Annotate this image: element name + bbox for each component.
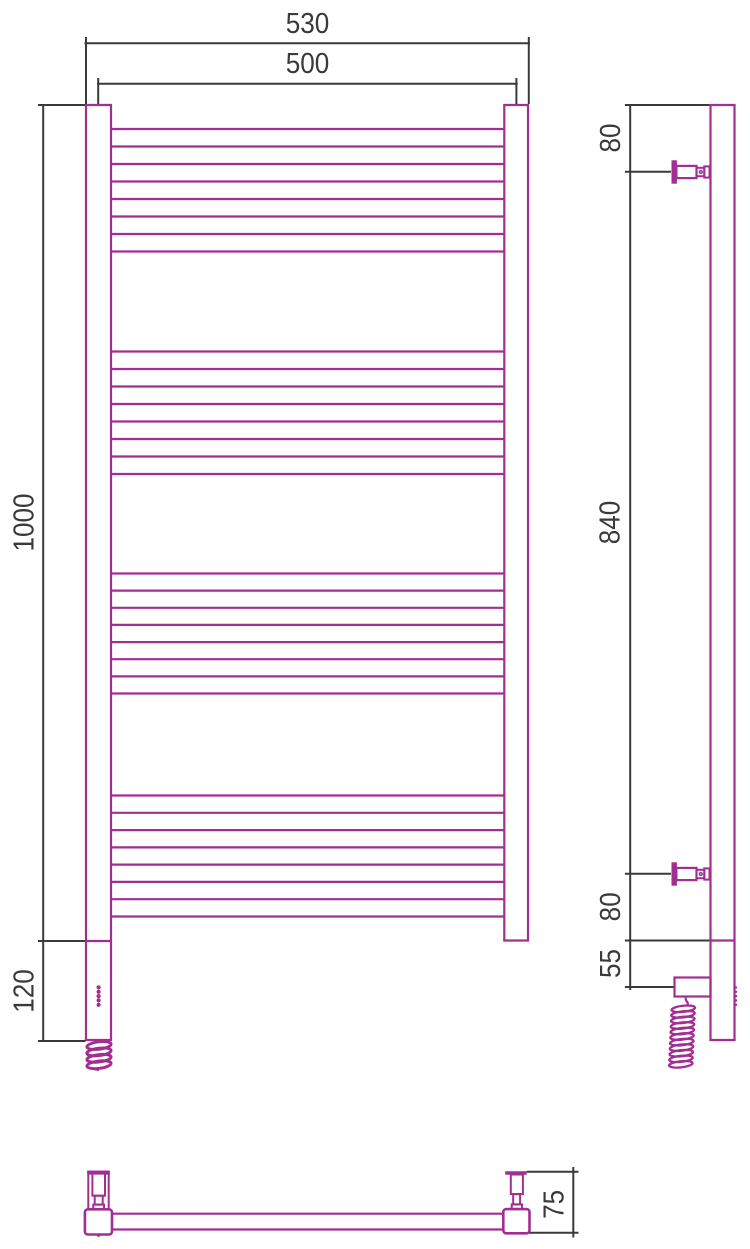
svg-text:80: 80 [594, 123, 627, 152]
svg-text:75: 75 [537, 1190, 570, 1219]
svg-text:500: 500 [286, 47, 330, 80]
svg-text:840: 840 [593, 501, 626, 545]
svg-text:120: 120 [7, 969, 40, 1013]
svg-text:1000: 1000 [7, 493, 40, 551]
svg-text:80: 80 [594, 892, 627, 921]
svg-text:530: 530 [286, 7, 330, 40]
svg-text:55: 55 [594, 949, 627, 978]
